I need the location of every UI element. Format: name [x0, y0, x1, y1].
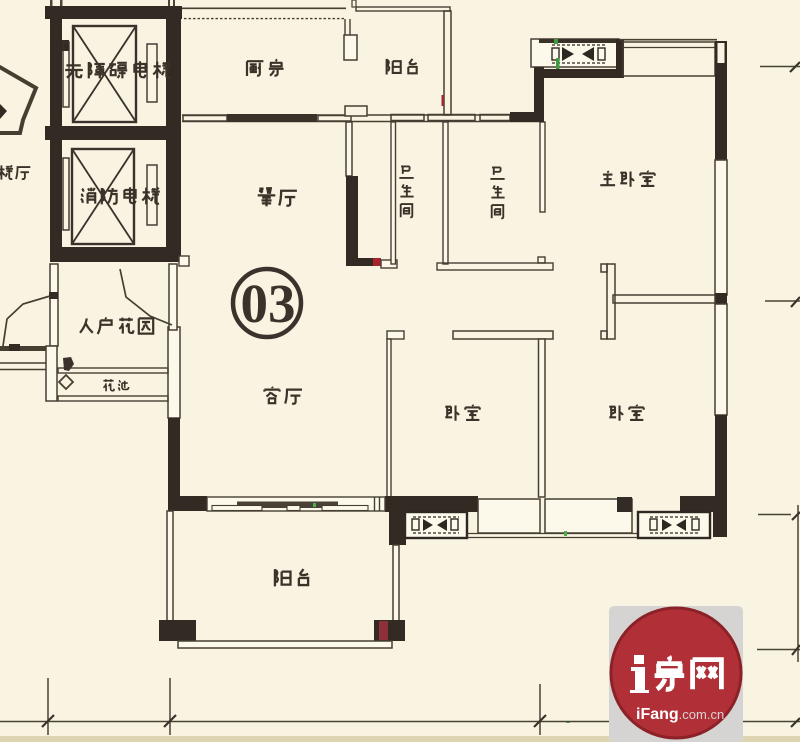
svg-text:iFang.com.cn: iFang.com.cn [636, 706, 724, 723]
svg-text:03: 03 [241, 273, 296, 334]
